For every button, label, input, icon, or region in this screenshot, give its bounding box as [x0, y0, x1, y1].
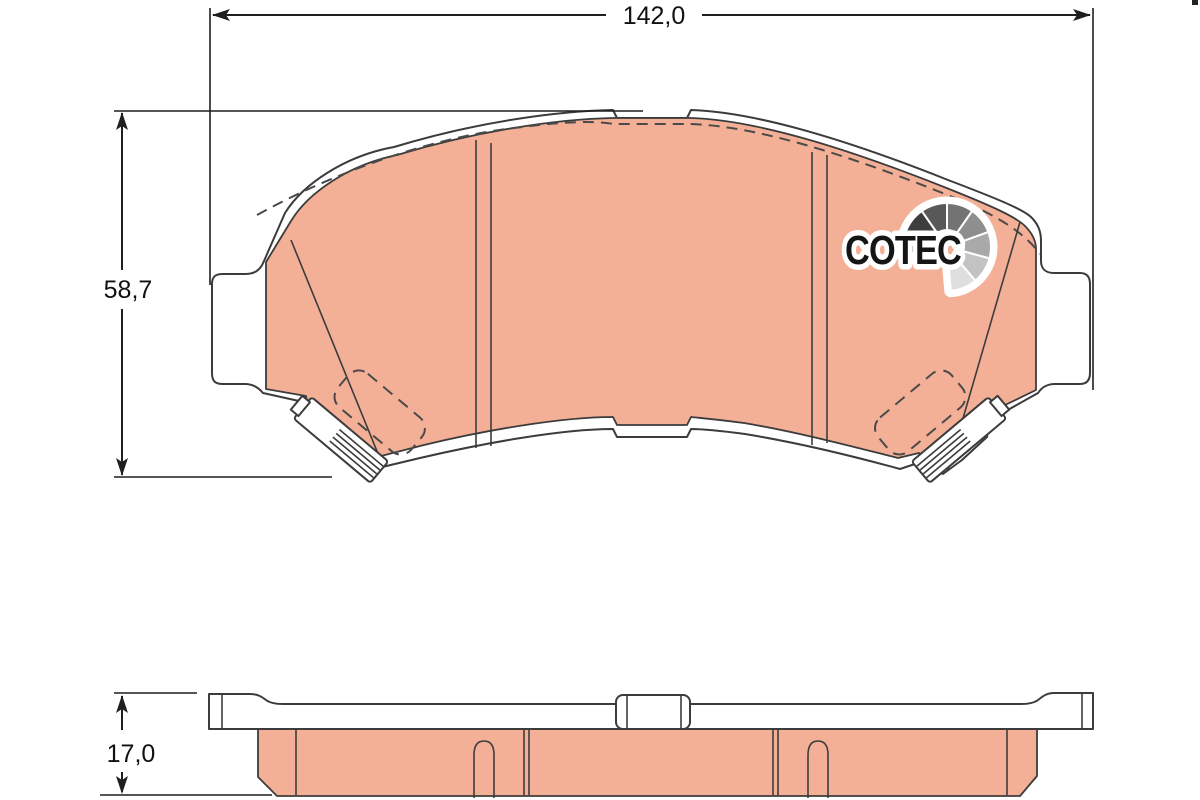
brake-pad-technical-drawing: COTEC 142,0 — [0, 0, 1200, 800]
dim-thickness-label: 17,0 — [107, 740, 156, 768]
dim-height-label: 58,7 — [104, 276, 153, 304]
bottom-view — [209, 693, 1093, 798]
drawing-canvas: COTEC 142,0 — [0, 0, 1200, 800]
friction-block — [258, 729, 1037, 796]
logo-text: COTEC — [845, 227, 961, 273]
scan-artifact-dot — [1192, 0, 1198, 5]
front-view: COTEC — [212, 110, 1090, 489]
dim-width-label: 142,0 — [623, 2, 686, 30]
